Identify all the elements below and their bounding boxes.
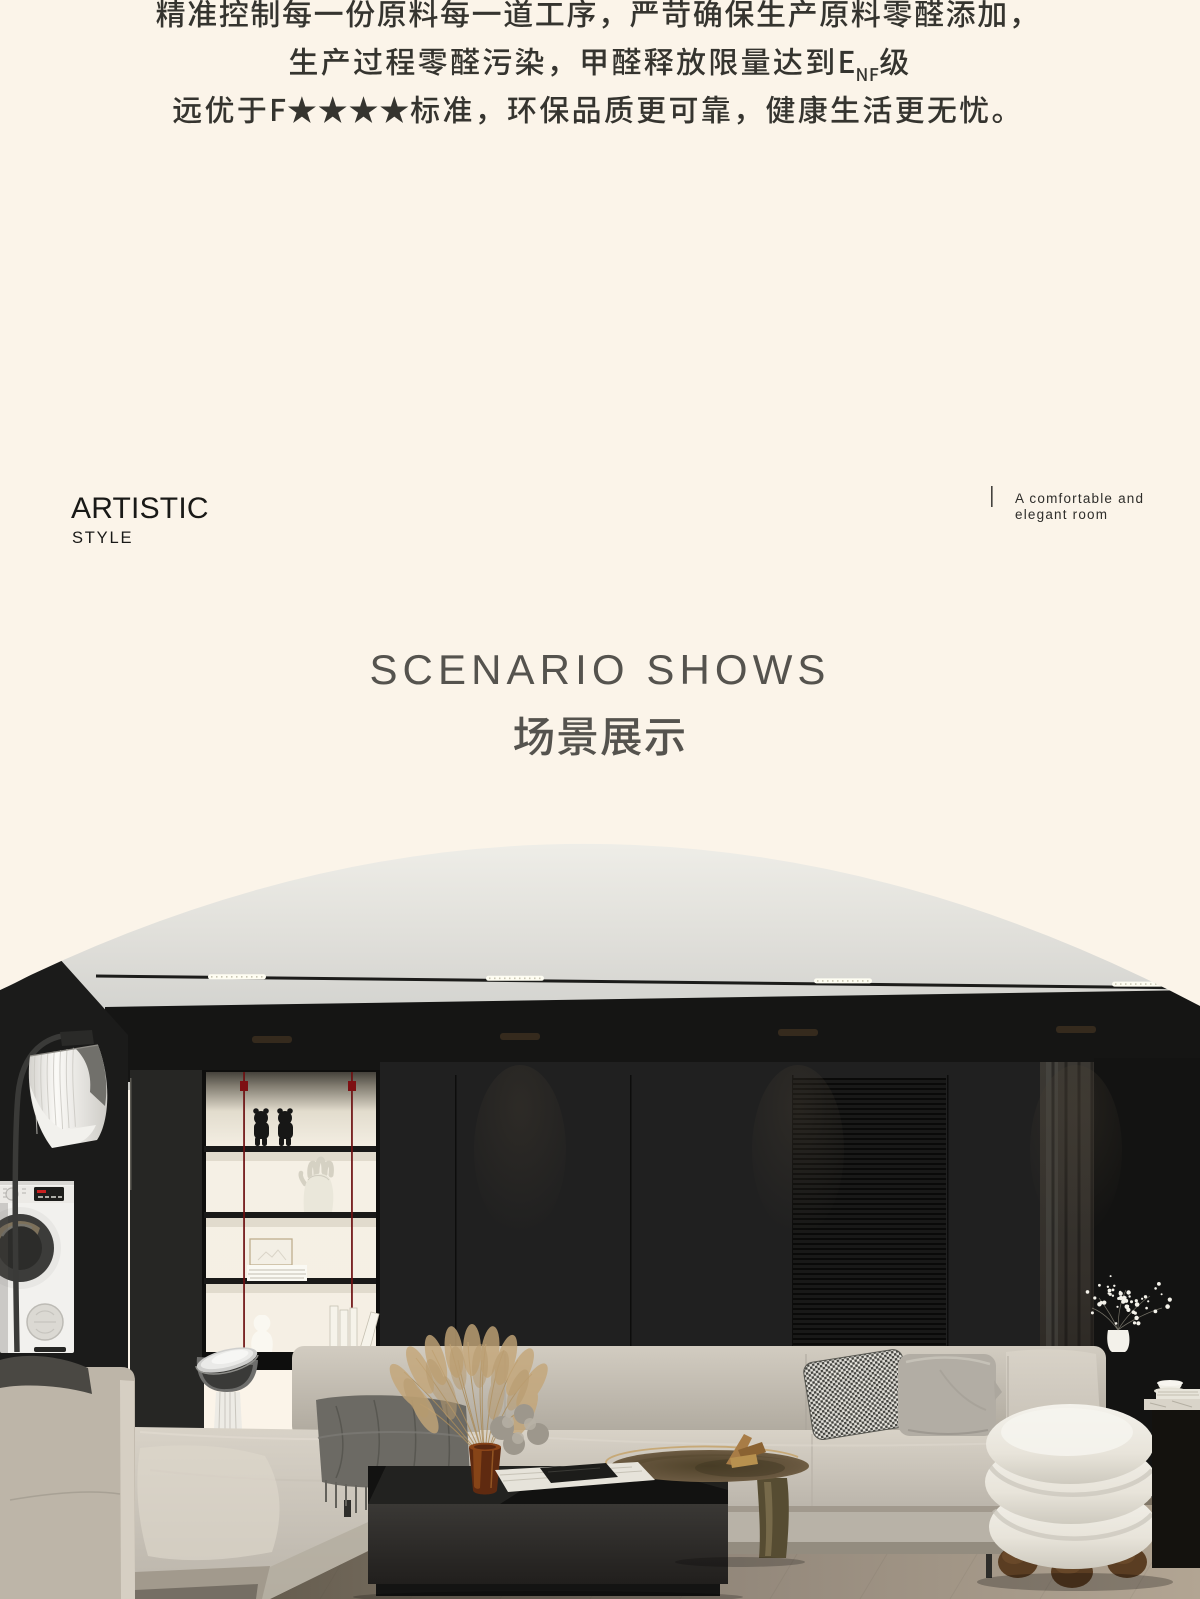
svg-text:A comfortable and: A comfortable and (1015, 491, 1144, 506)
svg-text:SCENARIO SHOWS: SCENARIO SHOWS (369, 646, 830, 693)
svg-text:ARTISTIC: ARTISTIC (71, 492, 209, 525)
svg-text:STYLE: STYLE (72, 529, 133, 547)
svg-text:elegant room: elegant room (1015, 507, 1108, 522)
